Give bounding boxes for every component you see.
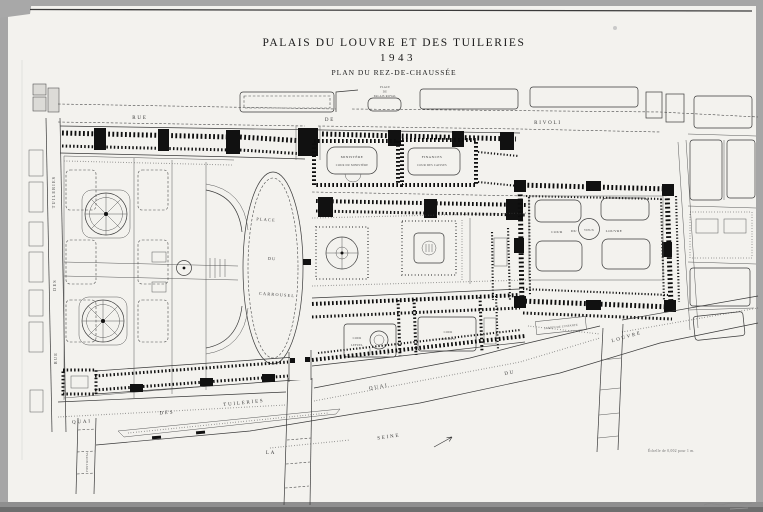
scanned-plan-photograph: PALAIS DU LOUVRE ET DES TUILERIES 1943 P… — [0, 0, 763, 512]
label-palais-royal: PALAIS ROYAL — [374, 94, 397, 98]
label-cour-visconti-1: COUR — [444, 330, 453, 334]
label-cour-des-caisses: COUR DES CAISSES — [417, 163, 447, 167]
plan-year: 1943 — [380, 52, 416, 64]
plan-title: PALAIS DU LOUVRE ET DES TUILERIES — [262, 37, 525, 49]
carrousel-monument — [303, 259, 311, 265]
label-des-v: DES — [52, 279, 57, 291]
label-place: PLACE — [380, 85, 390, 89]
label-cour-du-ministere: COUR DU MINISTÈRE — [336, 163, 369, 167]
label-rue: RUE — [132, 116, 147, 121]
label-pont-royal: PONT ROYAL — [85, 452, 89, 472]
label-tuileries-v: TUILERIES — [51, 176, 56, 209]
label-place-carrousel-2: DU — [268, 256, 277, 262]
label-cour: COUR — [551, 230, 563, 234]
label-quai-t: QUAI — [72, 419, 92, 425]
label-du: DU — [383, 90, 388, 94]
label-la: LA — [266, 451, 276, 456]
label-ministere: MINISTÈRE — [341, 154, 364, 159]
label-de: DE — [325, 118, 335, 123]
label-finances: FINANCES — [422, 155, 443, 159]
label-du-2: DU — [571, 229, 577, 233]
label-des-q: DES — [159, 410, 174, 416]
plan-drawing: PALAIS DU LOUVRE ET DES TUILERIES 1943 P… — [0, 0, 763, 512]
label-cour-lefuel-2: LEFUEL — [351, 343, 363, 347]
label-cour-lefuel-1: COUR — [353, 336, 362, 340]
label-vieux: VIEUX — [584, 228, 595, 232]
label-rue-v: RUE — [53, 352, 58, 364]
label-rivoli: RIVOLI — [534, 121, 562, 126]
guichets-du-carrousel — [289, 350, 311, 382]
label-louvre-court: LOUVRE — [606, 229, 623, 233]
plan-subtitle: PLAN DU REZ-DE-CHAUSSÉE — [331, 67, 456, 77]
